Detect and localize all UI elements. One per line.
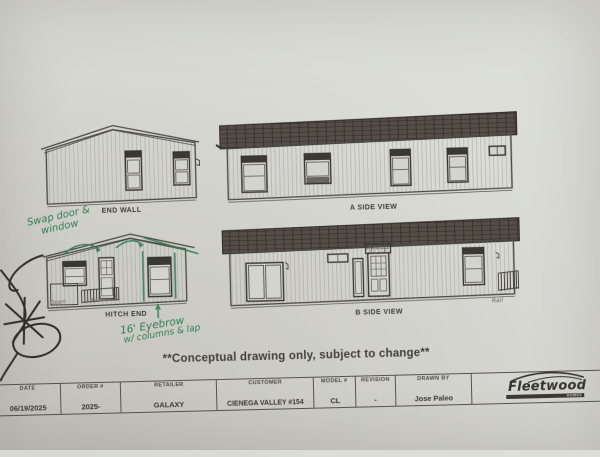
fleetwood-logo-sub: HOMES: [567, 393, 584, 397]
title-block-cell-date: DATE 06/19/2025: [0, 384, 62, 416]
title-block-cell-customer: CUSTOMER CIENEGA VALLEY #154: [217, 378, 315, 410]
drawn-by-header: DRAWN BY: [417, 376, 449, 382]
end-wall-label: END WALL: [102, 207, 142, 215]
b-side-view-label: B SIDE VIEW: [355, 309, 403, 317]
fleetwood-logo: Fleetwood HOMES: [494, 372, 591, 401]
title-block-cell-model: MODEL # CL: [314, 377, 357, 408]
a-side-view-label: A SIDE VIEW: [350, 204, 397, 212]
title-block-cell-retailer: RETAILER GALAXY: [121, 380, 218, 412]
b-side-rail-pencil-note: Rail: [492, 297, 504, 305]
retailer-value: GALAXY: [153, 400, 184, 410]
retailer-header: RETAILER: [154, 382, 184, 388]
title-block-cell-logo: Fleetwood HOMES: [472, 370, 600, 403]
customer-header: CUSTOMER: [248, 380, 282, 386]
a-side-view-elevation-drawing: [213, 108, 527, 216]
title-block-cell-revision: REVISION -: [356, 376, 397, 407]
fleetwood-logo-bar: HOMES: [506, 393, 584, 398]
revision-value: -: [374, 395, 377, 404]
date-header: DATE: [20, 386, 36, 392]
order-header: ORDER #: [77, 384, 104, 390]
customer-value: CIENEGA VALLEY #154: [227, 399, 304, 408]
revision-header: REVISION: [361, 377, 390, 383]
title-block-cell-order: ORDER # 2025-: [61, 382, 122, 413]
title-block-cell-drawn-by: DRAWN BY Jose Paleo: [396, 374, 473, 406]
drawing-sheet: END WALL A SIDE VIEW: [0, 0, 600, 457]
date-value: 06/19/2025: [10, 403, 47, 413]
b-side-view-elevation-drawing: [216, 215, 530, 318]
end-wall-elevation-drawing: [37, 118, 204, 218]
order-value: 2025-: [81, 402, 100, 411]
hitch-end-elevation-drawing: [36, 228, 208, 324]
hitch-rail-pencil-note: Rail: [90, 297, 102, 305]
drawn-by-value: Jose Paleo: [414, 393, 453, 403]
model-header: MODEL #: [321, 378, 348, 384]
title-block-table: DATE 06/19/2025 ORDER # 2025- RETAILER G…: [0, 369, 600, 416]
conceptual-disclaimer-note: **Conceptual drawing only, subject to ch…: [163, 347, 430, 366]
model-value: CL: [330, 396, 340, 405]
hitch-open-pencil-note: Open: [50, 298, 67, 306]
hitch-end-label: HITCH END: [105, 311, 147, 319]
